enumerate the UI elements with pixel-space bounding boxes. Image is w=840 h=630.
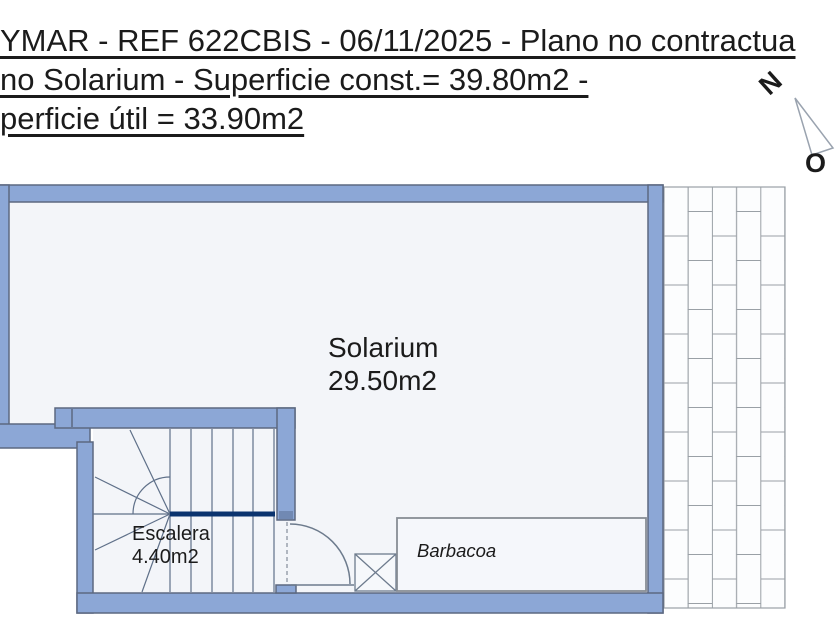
wall-right <box>648 185 663 613</box>
solarium-area: 29.50m2 <box>328 364 438 397</box>
barbacoa-label: Barbacoa <box>417 540 496 562</box>
brick-terrace <box>664 187 785 608</box>
header-line-1: YMAR - REF 622CBIS - 06/11/2025 - Plano … <box>0 21 796 60</box>
escalera-room-label: Escalera 4.40m2 <box>132 523 210 569</box>
wall-stair-left <box>77 442 93 613</box>
header-line-3: perficie útil = 33.90m2 <box>0 99 304 138</box>
floorplan-page: { "header": { "line1": "YMAR - REF 622CB… <box>0 0 840 630</box>
compass-west-icon: O <box>805 148 826 179</box>
plan-header: YMAR - REF 622CBIS - 06/11/2025 - Plano … <box>0 21 796 138</box>
wall-door-post <box>277 408 295 520</box>
door-post-cap <box>279 511 293 519</box>
compass-needle-icon <box>795 98 833 155</box>
solarium-name: Solarium <box>328 331 438 364</box>
escalera-name: Escalera <box>132 523 210 546</box>
solarium-room-label: Solarium 29.50m2 <box>328 331 438 397</box>
wall-bottom <box>77 593 663 613</box>
wall-left <box>0 185 9 447</box>
header-line-2: no Solarium - Superficie const.= 39.80m2… <box>0 60 796 99</box>
door-sill <box>276 585 296 593</box>
wall-stair-top <box>55 408 295 428</box>
crossed-square-fixture <box>355 554 396 591</box>
wall-top <box>0 185 663 202</box>
escalera-area: 4.40m2 <box>132 546 210 569</box>
